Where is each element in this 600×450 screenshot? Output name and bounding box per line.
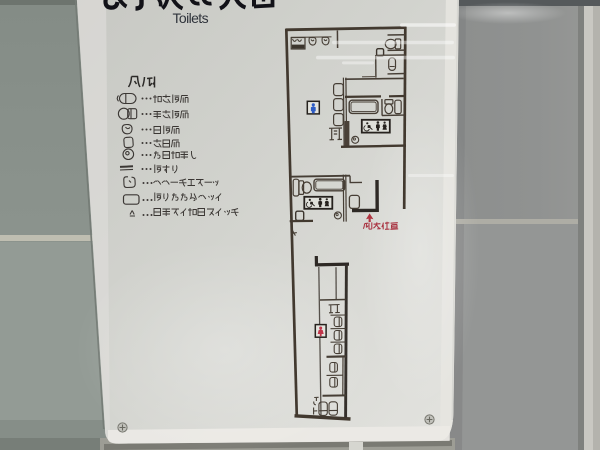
svg-text:Toilets: Toilets	[173, 10, 209, 26]
